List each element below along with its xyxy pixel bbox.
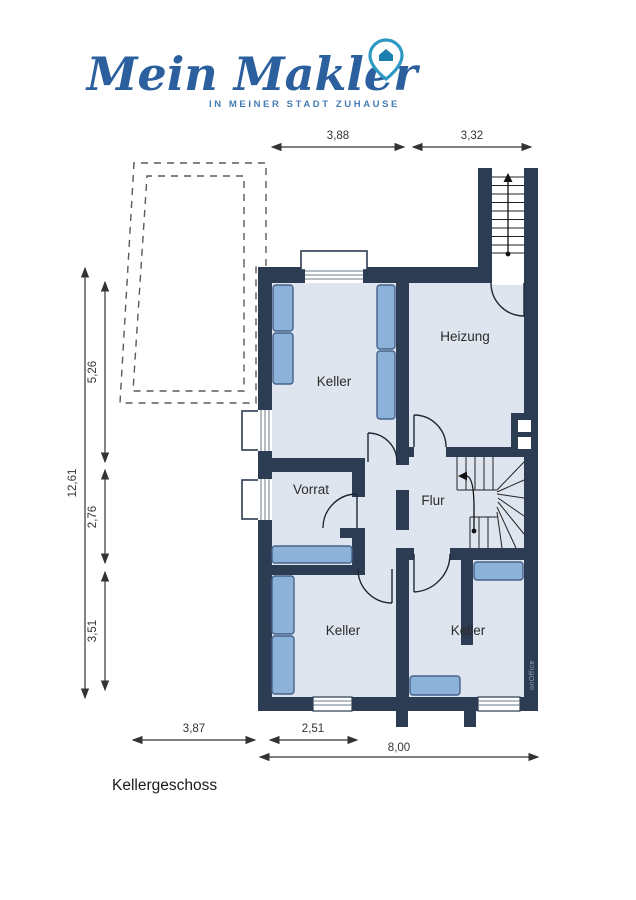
shelf: [272, 636, 294, 694]
window-left2-shaft: [242, 480, 259, 519]
dim-bottom-left: 3,87: [183, 723, 205, 735]
dim-left-lower: 3,51: [87, 620, 99, 642]
window-left1-shaft: [242, 411, 259, 450]
shelf: [272, 546, 352, 563]
room-label-keller-bottom-left: Keller: [326, 623, 361, 638]
shelf: [410, 676, 460, 695]
window-bottom1: [313, 697, 352, 711]
shelf: [474, 562, 523, 580]
dim-top-right: 3,32: [461, 130, 483, 142]
floorplan-canvas: Mein Makler IN MEINER STADT ZUHAUSE: [0, 0, 636, 900]
dim-top-left: 3,88: [327, 130, 349, 142]
dim-bottom-middle: 2,51: [302, 723, 324, 735]
brand-tagline: IN MEINER STADT ZUHAUSE: [209, 99, 400, 110]
room-label-heizung: Heizung: [440, 329, 490, 344]
dim-left-middle: 2,76: [87, 506, 99, 528]
dim-left-upper: 5,26: [87, 361, 99, 383]
window-bottom2: [478, 697, 520, 711]
brand-logo: Mein Makler IN MEINER STADT ZUHAUSE: [85, 40, 421, 110]
software-watermark: onOffice: [529, 660, 536, 690]
room-label-keller-top: Keller: [317, 374, 352, 389]
floorplan-page: Mein Makler IN MEINER STADT ZUHAUSE: [0, 0, 636, 900]
dim-left-total: 12,61: [67, 469, 79, 498]
room-label-flur: Flur: [421, 493, 445, 508]
floor-title: Kellergeschoss: [112, 777, 217, 794]
exterior-staircase: [492, 168, 524, 285]
room-label-keller-bottom-right: Keller: [451, 623, 486, 638]
shelf: [377, 285, 395, 349]
shelf: [272, 576, 294, 634]
shelf: [377, 351, 395, 419]
room-label-vorrat: Vorrat: [293, 482, 329, 497]
shelf: [273, 333, 293, 384]
shelf: [273, 285, 293, 331]
dim-bottom-total: 8,00: [388, 742, 410, 754]
terrace-dashed-outline: [120, 163, 266, 403]
